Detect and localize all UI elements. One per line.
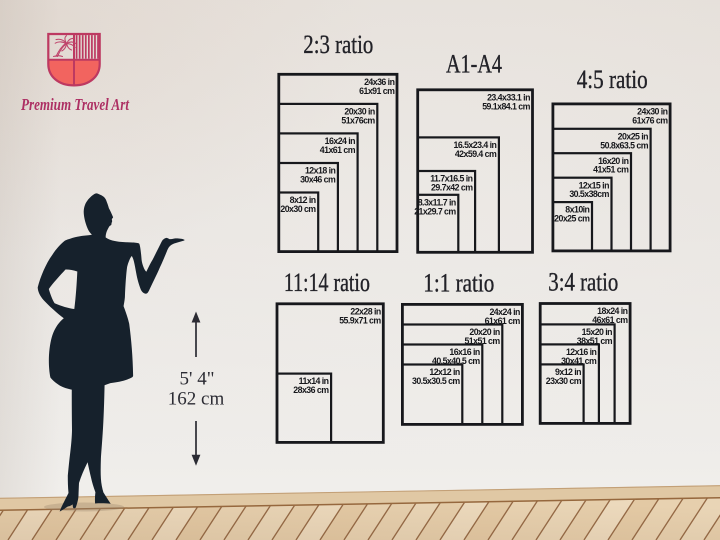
svg-text:20x25 cm: 20x25 cm bbox=[554, 214, 590, 224]
svg-text:42x59.4 cm: 42x59.4 cm bbox=[455, 149, 497, 159]
svg-text:4:5 ratio: 4:5 ratio bbox=[577, 65, 648, 94]
svg-text:41x61 cm: 41x61 cm bbox=[320, 145, 356, 155]
svg-text:30x46 cm: 30x46 cm bbox=[300, 175, 336, 185]
svg-text:28x36 cm: 28x36 cm bbox=[293, 385, 329, 395]
svg-text:30.5x30.5 cm: 30.5x30.5 cm bbox=[412, 376, 460, 386]
svg-text:5' 4": 5' 4" bbox=[180, 369, 215, 390]
svg-text:20x30 cm: 20x30 cm bbox=[280, 204, 316, 214]
svg-text:3:4 ratio: 3:4 ratio bbox=[548, 268, 618, 297]
svg-text:55.9x71 cm: 55.9x71 cm bbox=[339, 315, 381, 325]
svg-text:1:1 ratio: 1:1 ratio bbox=[423, 268, 494, 297]
svg-text:Premium Travel Art: Premium Travel Art bbox=[20, 95, 130, 114]
svg-text:23x30 cm: 23x30 cm bbox=[546, 376, 582, 386]
svg-text:61x91 cm: 61x91 cm bbox=[359, 86, 395, 96]
svg-text:61x76 cm: 61x76 cm bbox=[632, 115, 668, 125]
svg-text:2:3 ratio: 2:3 ratio bbox=[303, 30, 373, 59]
svg-text:30.5x38cm: 30.5x38cm bbox=[569, 189, 609, 199]
svg-text:41x51 cm: 41x51 cm bbox=[593, 165, 629, 175]
svg-text:50.8x63.5 cm: 50.8x63.5 cm bbox=[600, 140, 648, 150]
svg-text:A1-A4: A1-A4 bbox=[446, 50, 502, 79]
svg-text:162 cm: 162 cm bbox=[168, 389, 225, 410]
svg-text:11:14 ratio: 11:14 ratio bbox=[284, 268, 370, 297]
svg-text:59.1x84.1 cm: 59.1x84.1 cm bbox=[482, 101, 530, 111]
svg-text:29.7x42 cm: 29.7x42 cm bbox=[431, 183, 473, 193]
svg-text:51x76cm: 51x76cm bbox=[341, 115, 375, 125]
svg-text:21x29.7 cm: 21x29.7 cm bbox=[414, 206, 456, 216]
